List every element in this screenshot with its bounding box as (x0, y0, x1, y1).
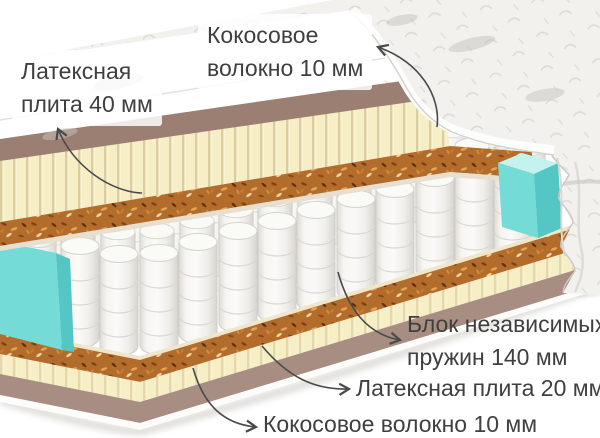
label-springs-line1: Блок независимых (407, 308, 600, 341)
label-latex-bottom-text: Латексная плита 20 мм (356, 372, 600, 405)
side-support-right (498, 153, 562, 238)
label-latex-top-line2: плита 40 мм (21, 88, 153, 121)
label-coir-top-line1: Кокосовое (207, 19, 363, 52)
label-coir-top-line2: волокно 10 мм (207, 52, 363, 85)
mattress-layers-diagram: Латексная плита 40 мм Кокосовое волокно … (0, 0, 600, 438)
label-coir-bottom: Кокосовое волокно 10 мм (263, 408, 537, 438)
label-coir-top: Кокосовое волокно 10 мм (198, 14, 372, 90)
label-latex-top-line1: Латексная (21, 55, 153, 88)
side-support-left (0, 246, 74, 352)
label-springs-line2: пружин 140 мм (407, 341, 600, 374)
label-latex-bottom: Латексная плита 20 мм (356, 372, 600, 405)
label-coir-bottom-text: Кокосовое волокно 10 мм (263, 408, 537, 438)
label-springs: Блок независимых пружин 140 мм (407, 308, 600, 374)
label-latex-top: Латексная плита 40 мм (12, 50, 162, 126)
